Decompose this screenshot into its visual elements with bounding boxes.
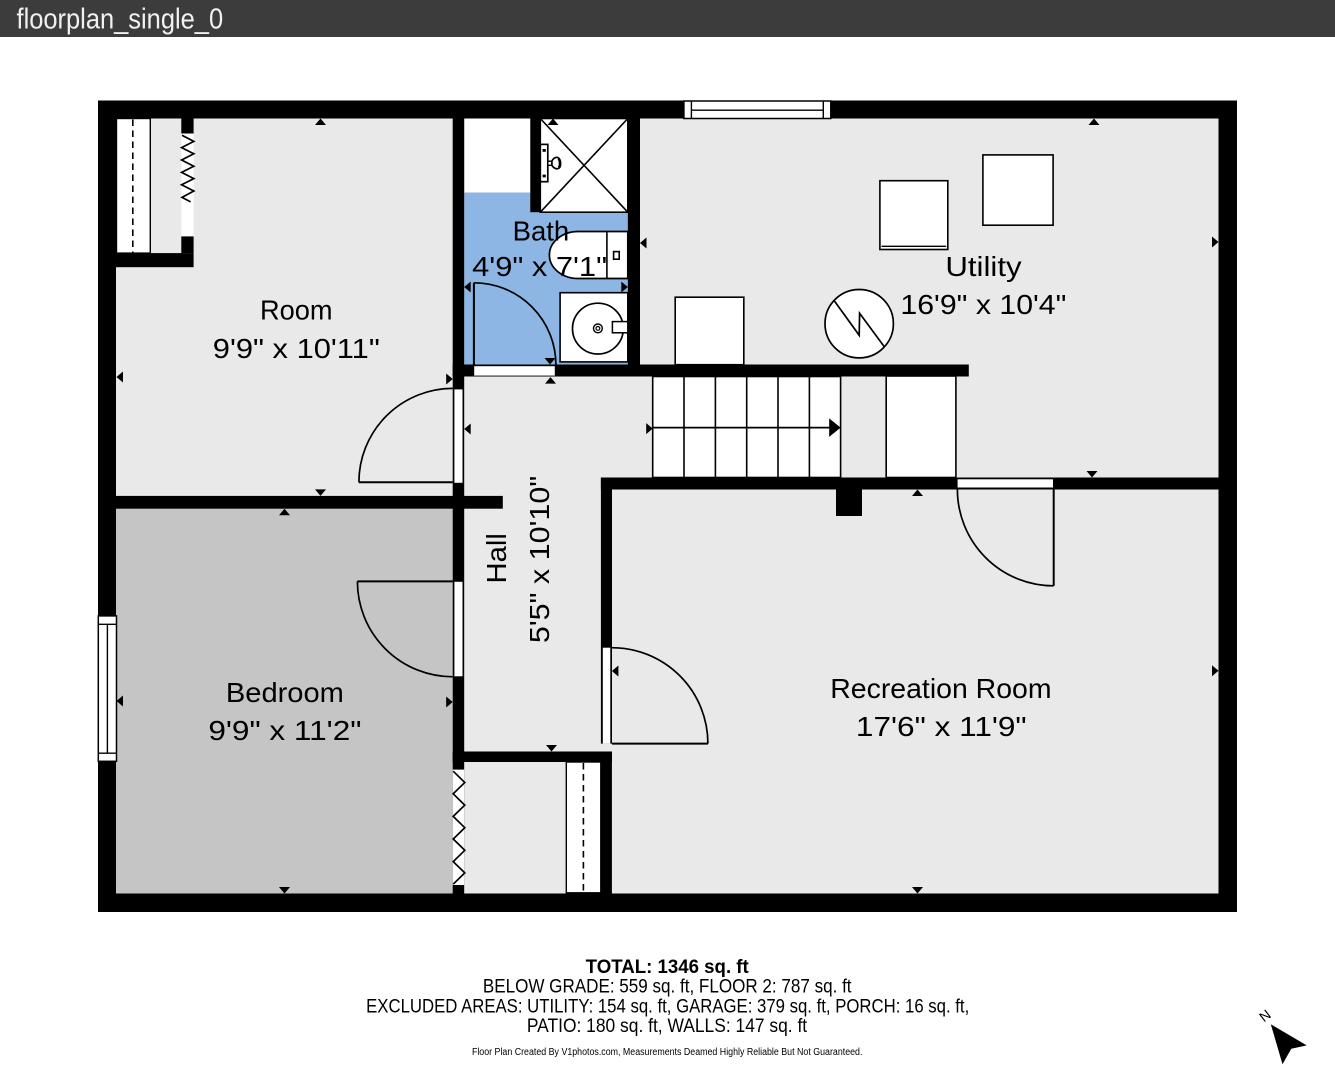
svg-text:Bedroom: Bedroom (226, 677, 344, 708)
svg-text:Hall: Hall (481, 533, 512, 584)
svg-text:9'9" x 11'2": 9'9" x 11'2" (208, 715, 361, 746)
svg-text:BELOW GRADE: 559 sq. ft, FLOOR: BELOW GRADE: 559 sq. ft, FLOOR 2: 787 sq… (483, 976, 852, 998)
svg-text:EXCLUDED AREAS: UTILITY: 154 s: EXCLUDED AREAS: UTILITY: 154 sq. ft, GAR… (366, 995, 969, 1017)
svg-text:17'6" x 11'9": 17'6" x 11'9" (856, 711, 1027, 742)
svg-text:4'9" x 7'1": 4'9" x 7'1" (472, 251, 607, 282)
svg-text:Bath: Bath (513, 215, 570, 246)
svg-text:5'5" x 10'10": 5'5" x 10'10" (524, 476, 555, 643)
svg-text:floorplan_single_0: floorplan_single_0 (17, 3, 224, 35)
svg-text:Utility: Utility (945, 251, 1021, 282)
svg-text:Recreation Room: Recreation Room (830, 673, 1051, 704)
svg-text:PATIO: 180 sq. ft, WALLS: 147: PATIO: 180 sq. ft, WALLS: 147 sq. ft (527, 1015, 808, 1037)
svg-text:16'9" x 10'4": 16'9" x 10'4" (900, 289, 1066, 320)
svg-text:9'9" x 10'11": 9'9" x 10'11" (213, 333, 380, 364)
svg-text:Room: Room (260, 295, 333, 326)
svg-text:Floor Plan Created By V1photos: Floor Plan Created By V1photos.com, Meas… (472, 1047, 863, 1058)
